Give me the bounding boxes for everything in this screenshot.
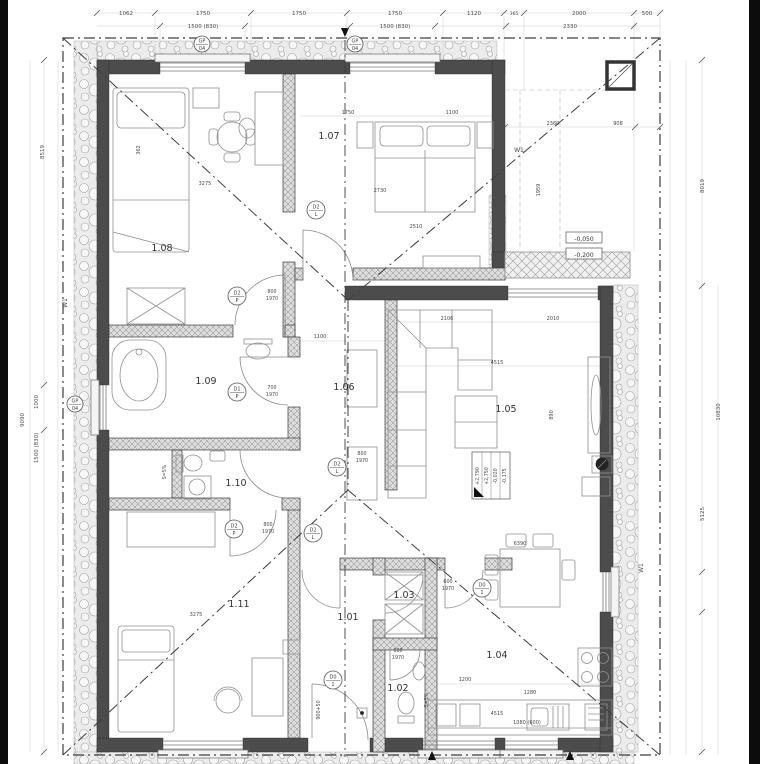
- dim-inline: 1750: [342, 110, 355, 116]
- dim-left: 1000: [34, 395, 40, 409]
- dim-left: 1500 (830): [34, 433, 40, 464]
- door-symbol-text: D2: [333, 462, 340, 468]
- gp-symbol-text: 04: [352, 46, 358, 52]
- room-number: 1.10: [225, 478, 246, 489]
- dim-inline: 908: [613, 121, 623, 127]
- elevation-value: +2,750: [484, 467, 490, 485]
- room-number: 1.02: [387, 683, 408, 694]
- dim-inline: 1080 (600): [513, 720, 541, 726]
- dim-top2: 2330: [563, 24, 577, 30]
- door-size-tag: 1970: [266, 392, 278, 398]
- dim-inline: 1100: [446, 110, 459, 116]
- dim-top: 365: [510, 11, 519, 17]
- room-number: 1.04: [486, 650, 507, 661]
- door-size-tag: 1970: [262, 529, 274, 535]
- dim-inline: 3275: [190, 612, 203, 618]
- dim-left: 9090: [20, 413, 26, 427]
- misc-label: S=5%: [424, 692, 430, 707]
- door-symbol-text: L: [312, 535, 315, 541]
- elevation-legend: +2,790+2,750-0,020-0,175: [472, 452, 510, 499]
- door-size-tag: 600: [393, 648, 402, 654]
- dim-top: 1120: [467, 11, 481, 17]
- elevation-value: +2,790: [475, 467, 481, 485]
- gp-symbol-text: GP: [199, 39, 206, 45]
- dim-inline: 1200: [459, 677, 472, 683]
- dim-inline: 2010: [547, 316, 560, 322]
- dim-right: 5125: [700, 507, 706, 521]
- door-symbol-text: P: [235, 394, 238, 400]
- door-symbol-text: D2: [312, 205, 319, 211]
- dim-top: 1750: [196, 11, 210, 17]
- door-symbol-text: 1: [480, 590, 483, 596]
- level-text: -0,050: [574, 236, 594, 243]
- elevation-value: -0,020: [493, 468, 499, 483]
- room-number: 1.08: [151, 243, 172, 254]
- scan-edge-left: [0, 0, 8, 764]
- dim-right: 8019: [700, 179, 706, 193]
- door-symbol-text: P: [235, 298, 238, 304]
- door-symbol-text: D0: [329, 675, 336, 681]
- scan-edge-right: [749, 0, 760, 764]
- door-symbol-text: L: [315, 212, 318, 218]
- door-size-tag: 800: [357, 451, 366, 457]
- room-number: 1.05: [495, 404, 516, 415]
- room-number: 1.11: [228, 599, 249, 610]
- gp-symbol-text: 04: [72, 406, 78, 412]
- dim-top2: 1500 (830): [188, 24, 219, 30]
- room-number: 1.03: [393, 590, 414, 601]
- gp-symbol-text: GP: [352, 39, 359, 45]
- dim-inline: 4515: [491, 360, 504, 366]
- wall-type-label: W1: [514, 147, 524, 154]
- dim-inline: 1100: [314, 334, 327, 340]
- door-symbol-text: 1: [331, 682, 334, 688]
- dim-inline: 2360: [547, 121, 560, 127]
- door-symbol-text: D2: [233, 291, 240, 297]
- elevation-value: -0,175: [502, 468, 508, 483]
- door-symbol-text: P: [232, 531, 235, 537]
- dim-top: 1750: [388, 11, 402, 17]
- dim-inline: 362: [136, 145, 142, 155]
- gp-symbol-text: GP: [72, 399, 79, 405]
- door-symbol-text: D1: [233, 387, 240, 393]
- misc-label: 900+50: [316, 700, 322, 719]
- door-size-tag: 800: [267, 289, 276, 295]
- chimney: [607, 62, 634, 89]
- door-size-tag: 600: [443, 579, 452, 585]
- door-symbol-text: D0: [478, 583, 485, 589]
- dim-inline: 3275: [199, 181, 212, 187]
- dim-inline: 1959: [536, 184, 542, 197]
- room-number: 1.09: [195, 376, 216, 387]
- dim-inline: 2106: [441, 316, 454, 322]
- door-size-tag: 1970: [442, 586, 454, 592]
- dim-top: 1750: [292, 11, 306, 17]
- dim-inline: 2730: [374, 188, 387, 194]
- dim-inline: 1280: [524, 690, 537, 696]
- dim-left: 8519: [40, 145, 46, 159]
- room-number: 1.01: [337, 612, 358, 623]
- door-symbol-text: L: [336, 469, 339, 475]
- dim-top: 1062: [119, 11, 133, 17]
- door-size-tag: 800: [263, 522, 272, 528]
- dim-inline: 4515: [491, 711, 504, 717]
- door-size-tag: 1970: [266, 296, 278, 302]
- door-size-tag: 1970: [392, 655, 404, 661]
- door-symbol-text: D2: [230, 524, 237, 530]
- room-number: 1.06: [333, 382, 354, 393]
- dim-inline: 6390: [514, 541, 527, 547]
- level-text: -0,200: [574, 252, 594, 259]
- floor-plan-svg: +2,790+2,750-0,020-0,175 1.011.021.031.0…: [0, 0, 760, 764]
- floor-plan-page: +2,790+2,750-0,020-0,175 1.011.021.031.0…: [0, 0, 760, 764]
- dim-top: 500: [642, 11, 653, 17]
- misc-label: S=5%: [162, 464, 168, 479]
- gp-symbol-text: 04: [199, 46, 205, 52]
- dim-right: 10830: [716, 403, 722, 421]
- wall-type-label: W1: [62, 298, 69, 308]
- room-number: 1.07: [318, 131, 339, 142]
- dim-inline: 2510: [410, 224, 423, 230]
- dim-top: 2000: [572, 11, 586, 17]
- door-size-tag: 1970: [356, 458, 368, 464]
- door-symbol-text: D2: [309, 528, 316, 534]
- dim-top2: 1500 (830): [380, 24, 411, 30]
- door-size-tag: 700: [267, 385, 276, 391]
- wall-type-label: W1: [638, 563, 645, 573]
- dim-inline: 890: [549, 410, 555, 420]
